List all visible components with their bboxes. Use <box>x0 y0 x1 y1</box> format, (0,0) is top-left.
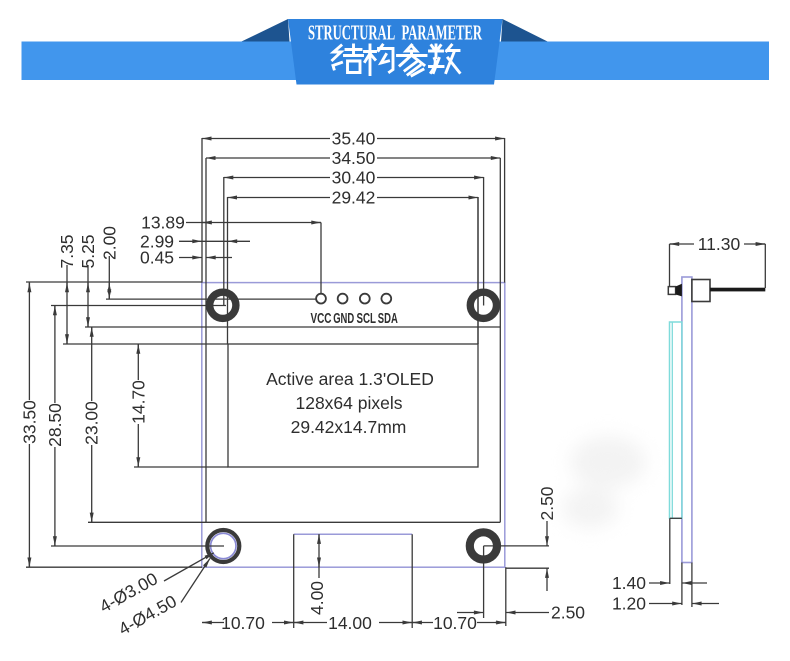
svg-text:10.70: 10.70 <box>433 613 477 633</box>
svg-text:34.50: 34.50 <box>332 148 376 168</box>
svg-text:14.00: 14.00 <box>328 613 372 633</box>
svg-text:SCL: SCL <box>357 311 377 327</box>
svg-text:4.00: 4.00 <box>307 581 327 615</box>
svg-text:35.40: 35.40 <box>332 129 376 149</box>
svg-text:14.70: 14.70 <box>128 380 148 424</box>
svg-text:STRUCTURAL PARAMETER: STRUCTURAL PARAMETER <box>308 21 482 45</box>
svg-text:128x64 pixels: 128x64 pixels <box>295 393 402 413</box>
svg-text:28.50: 28.50 <box>45 403 65 447</box>
svg-text:SDA: SDA <box>378 311 398 327</box>
svg-text:GND: GND <box>333 311 354 327</box>
svg-text:23.00: 23.00 <box>82 401 102 445</box>
svg-text:33.50: 33.50 <box>19 400 39 444</box>
svg-text:7.35: 7.35 <box>57 234 77 268</box>
svg-text:13.89: 13.89 <box>141 213 185 233</box>
svg-text:2.50: 2.50 <box>551 603 585 623</box>
svg-text:29.42x14.7mm: 29.42x14.7mm <box>291 417 407 437</box>
svg-text:1.20: 1.20 <box>612 594 646 614</box>
svg-text:1.40: 1.40 <box>612 573 646 593</box>
svg-text:2.50: 2.50 <box>537 486 557 520</box>
svg-text:VCC: VCC <box>311 311 332 327</box>
svg-text:5.25: 5.25 <box>78 234 98 268</box>
svg-text:Active area 1.3'OLED: Active area 1.3'OLED <box>266 369 434 389</box>
svg-text:29.42: 29.42 <box>332 188 376 208</box>
svg-text:0.45: 0.45 <box>140 248 174 268</box>
svg-text:10.70: 10.70 <box>221 613 265 633</box>
svg-text:2.00: 2.00 <box>99 226 119 260</box>
svg-text:30.40: 30.40 <box>332 168 376 188</box>
svg-text:11.30: 11.30 <box>698 234 741 254</box>
